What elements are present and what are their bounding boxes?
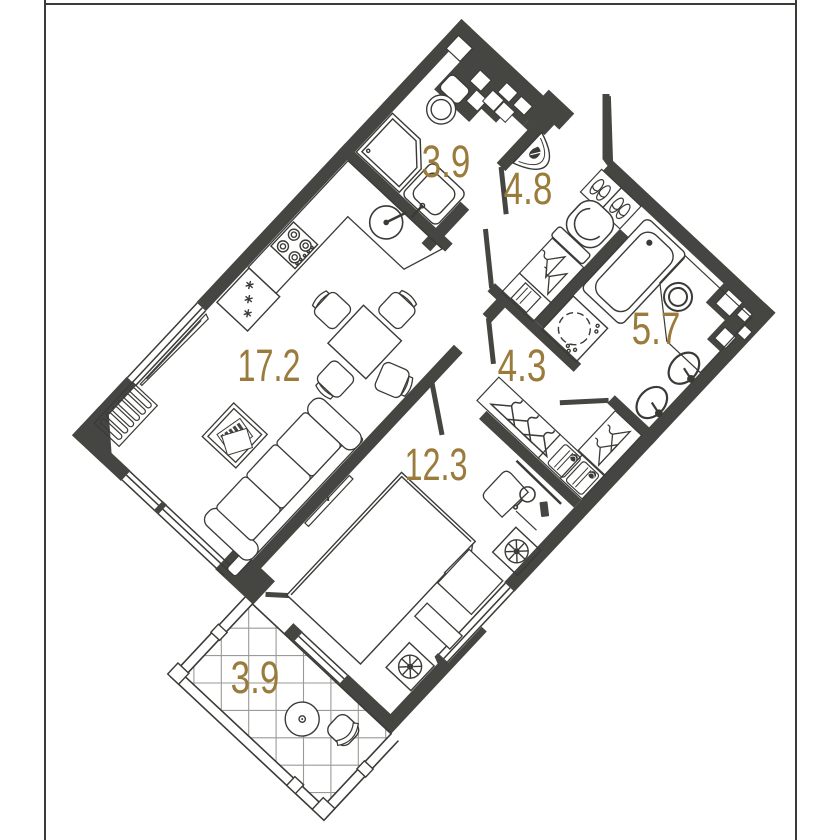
svg-text:3.9: 3.9 — [422, 136, 471, 187]
svg-text:17.2: 17.2 — [237, 342, 300, 391]
svg-text:5.7: 5.7 — [632, 303, 681, 354]
svg-text:4.3: 4.3 — [498, 340, 547, 391]
svg-text:3.9: 3.9 — [231, 652, 280, 703]
svg-text:12.3: 12.3 — [404, 441, 467, 490]
svg-text:4.8: 4.8 — [504, 163, 553, 214]
